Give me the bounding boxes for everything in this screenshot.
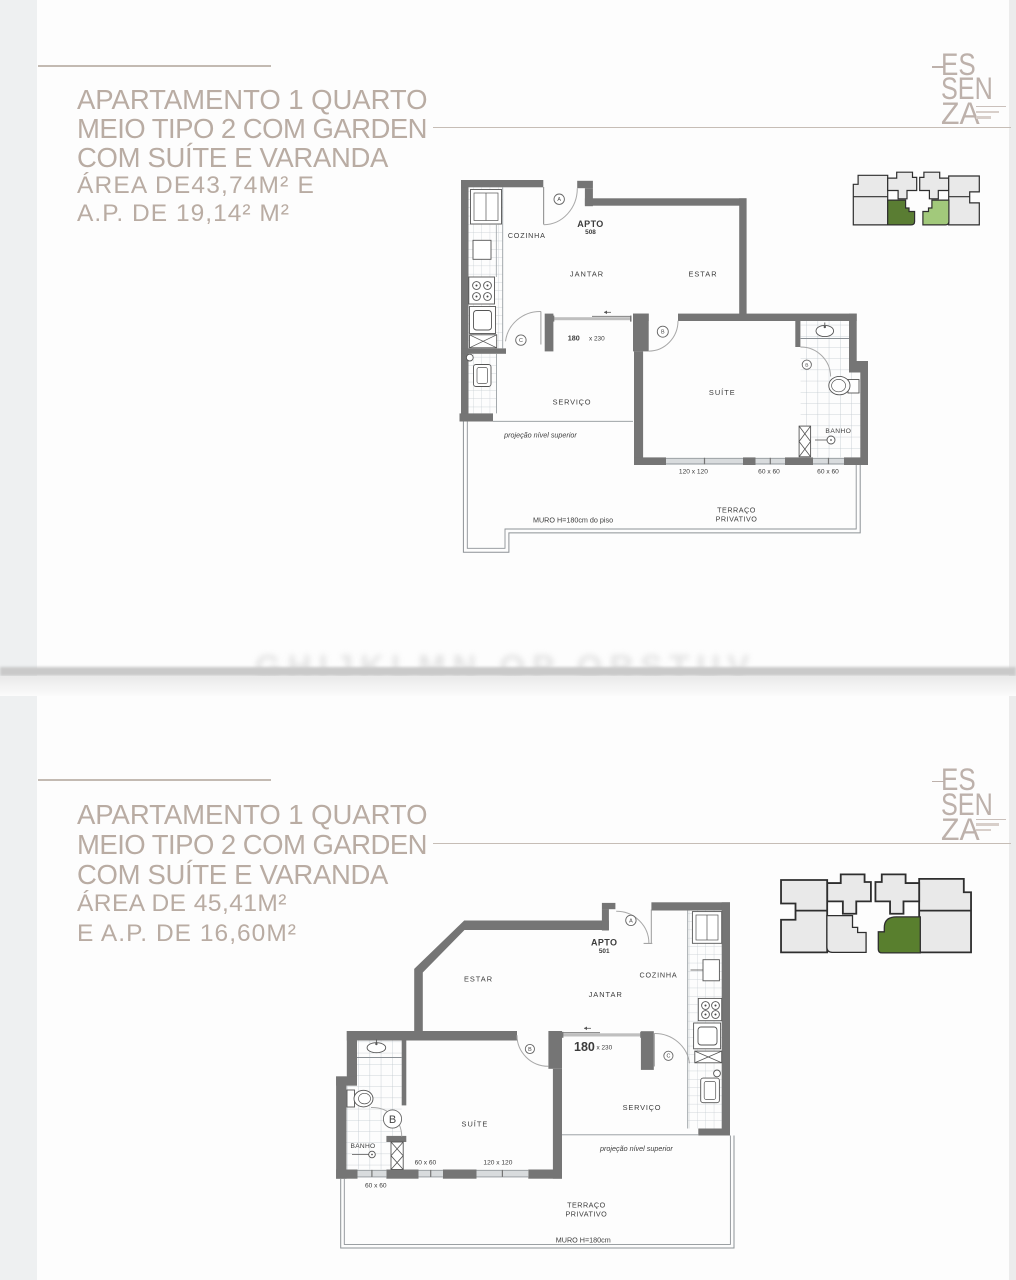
svg-text:B: B (528, 1047, 532, 1053)
svg-text:JANTAR: JANTAR (589, 990, 623, 999)
svg-text:APTO: APTO (591, 938, 617, 948)
svg-text:120 x 120: 120 x 120 (483, 1160, 512, 1167)
svg-text:B: B (805, 363, 808, 369)
svg-text:APTO: APTO (577, 219, 603, 229)
svg-text:BANHO: BANHO (351, 1143, 376, 1150)
svg-text:SUÍTE: SUÍTE (462, 1120, 489, 1129)
svg-text:PRIVATIVO: PRIVATIVO (716, 515, 758, 524)
svg-text:A: A (629, 918, 633, 924)
svg-text:MURO H=180cm do piso: MURO H=180cm do piso (533, 516, 613, 525)
svg-text:501: 501 (599, 948, 610, 955)
svg-text:A: A (557, 197, 561, 203)
svg-text:SERVIÇO: SERVIÇO (623, 1103, 662, 1112)
svg-text:C: C (666, 1054, 670, 1060)
svg-text:B: B (661, 330, 665, 336)
svg-text:180: 180 (574, 1040, 595, 1054)
svg-text:TERRAÇO: TERRAÇO (567, 1201, 606, 1210)
svg-text:TERRAÇO: TERRAÇO (717, 506, 756, 515)
svg-text:JANTAR: JANTAR (570, 270, 604, 279)
svg-text:SUÍTE: SUÍTE (709, 388, 736, 397)
svg-text:projeção nível superior: projeção nível superior (503, 431, 577, 440)
svg-text:x 230: x 230 (597, 1045, 613, 1052)
svg-text:180: 180 (568, 334, 580, 343)
svg-text:60 x 60: 60 x 60 (758, 469, 780, 476)
svg-text:60 x 60: 60 x 60 (415, 1160, 437, 1167)
svg-text:COZINHA: COZINHA (508, 231, 546, 240)
svg-text:B: B (389, 1114, 396, 1126)
svg-text:ESTAR: ESTAR (464, 974, 493, 983)
svg-text:120 x 120: 120 x 120 (679, 469, 708, 476)
svg-text:x 230: x 230 (589, 335, 605, 342)
svg-text:ESTAR: ESTAR (688, 270, 717, 279)
svg-text:C: C (519, 338, 523, 344)
svg-text:BANHO: BANHO (825, 428, 851, 435)
svg-text:SERVIÇO: SERVIÇO (553, 398, 592, 407)
svg-text:COZINHA: COZINHA (640, 970, 678, 979)
svg-text:projeção nível superior: projeção nível superior (599, 1144, 673, 1153)
svg-text:508: 508 (585, 229, 596, 236)
svg-text:MURO H=180cm: MURO H=180cm (556, 1236, 611, 1245)
svg-text:60 x 60: 60 x 60 (365, 1183, 387, 1190)
svg-text:60 x 60: 60 x 60 (817, 469, 839, 476)
svg-text:PRIVATIVO: PRIVATIVO (566, 1210, 608, 1219)
